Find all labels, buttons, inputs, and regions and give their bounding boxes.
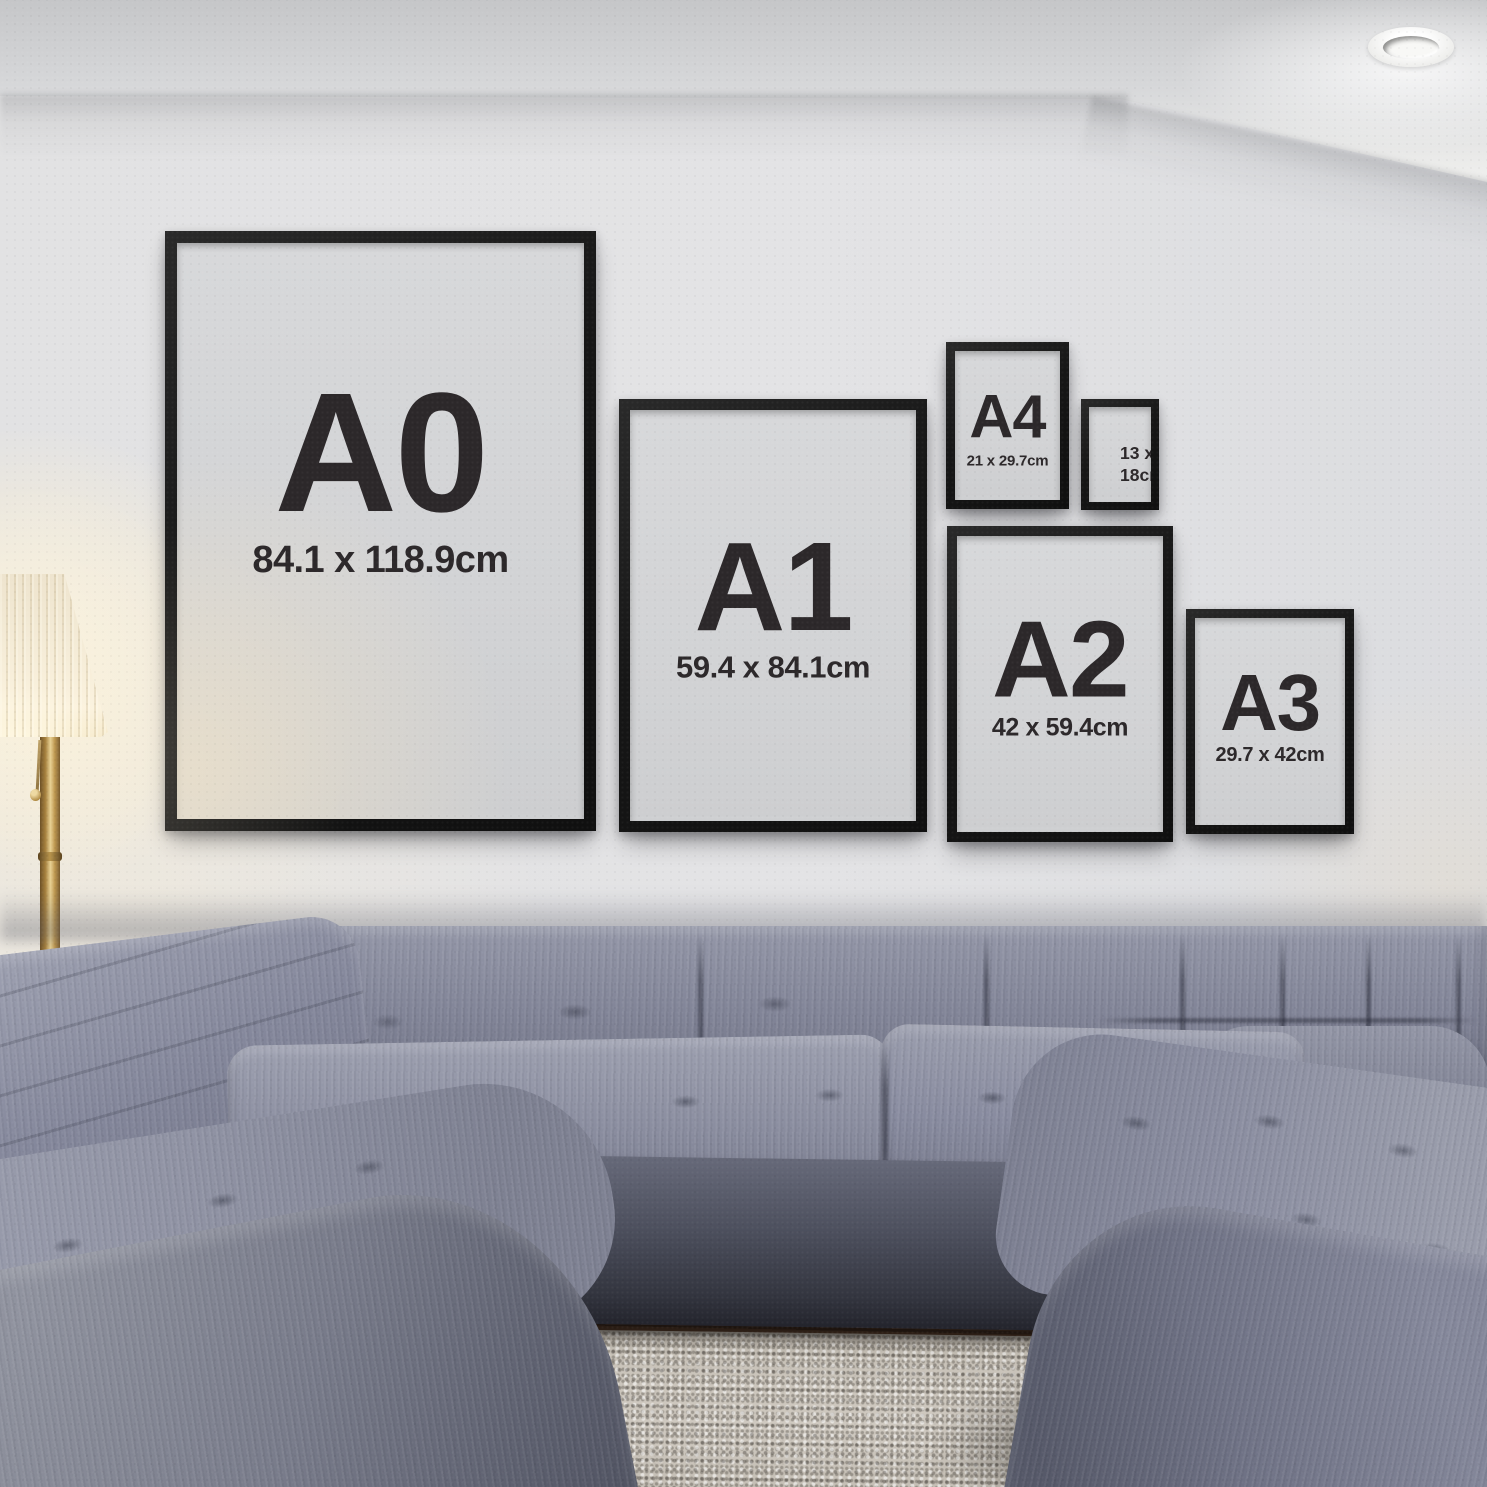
recessed-ceiling-light bbox=[1368, 27, 1454, 67]
living-room-scene: A0 84.1 x 118.9cm A1 59.4 x 84.1cm A4 21… bbox=[0, 0, 1487, 1487]
frame-13x18-dimensions-line2: 18cm bbox=[1120, 465, 1151, 487]
frame-a2-mat: A2 42 x 59.4cm bbox=[957, 536, 1163, 832]
recessed-light-bulb bbox=[1383, 36, 1439, 59]
frame-a1-mat: A1 59.4 x 84.1cm bbox=[630, 410, 916, 821]
ceiling-wall-junction-shadow bbox=[0, 94, 1128, 160]
frame-a3-mat: A3 29.7 x 42cm bbox=[1195, 618, 1345, 825]
frame-a0-mat: A0 84.1 x 118.9cm bbox=[177, 243, 584, 819]
frame-a1-size-label: A1 bbox=[694, 524, 851, 650]
frame-a1-dimensions: 59.4 x 84.1cm bbox=[676, 651, 870, 682]
cushion-seam bbox=[1098, 1018, 1478, 1023]
frame-13x18-mat: 13 x 18cm bbox=[1089, 407, 1151, 502]
frame-a3-size-label: A3 bbox=[1220, 663, 1320, 743]
frame-13x18: 13 x 18cm bbox=[1081, 399, 1159, 510]
frame-a3-dimensions: 29.7 x 42cm bbox=[1215, 745, 1324, 765]
frame-a4-dimensions: 21 x 29.7cm bbox=[967, 453, 1049, 468]
frame-a0-size-label: A0 bbox=[274, 368, 486, 538]
floor-lamp-pull-ball bbox=[30, 789, 41, 801]
frame-a0-dimensions: 84.1 x 118.9cm bbox=[252, 541, 508, 579]
frame-a4-mat: A4 21 x 29.7cm bbox=[955, 351, 1060, 500]
frame-13x18-dimensions-line1: 13 x bbox=[1120, 443, 1151, 465]
frame-a1: A1 59.4 x 84.1cm bbox=[619, 399, 927, 832]
frame-a2: A2 42 x 59.4cm bbox=[947, 526, 1173, 842]
frame-a3: A3 29.7 x 42cm bbox=[1186, 609, 1354, 834]
frame-a2-dimensions: 42 x 59.4cm bbox=[992, 716, 1128, 741]
frame-a4-size-label: A4 bbox=[969, 386, 1045, 447]
floor-lamp-pole-joint bbox=[38, 852, 62, 861]
frame-a0: A0 84.1 x 118.9cm bbox=[165, 231, 596, 831]
frame-a2-size-label: A2 bbox=[992, 606, 1128, 715]
frame-a4: A4 21 x 29.7cm bbox=[946, 342, 1069, 509]
